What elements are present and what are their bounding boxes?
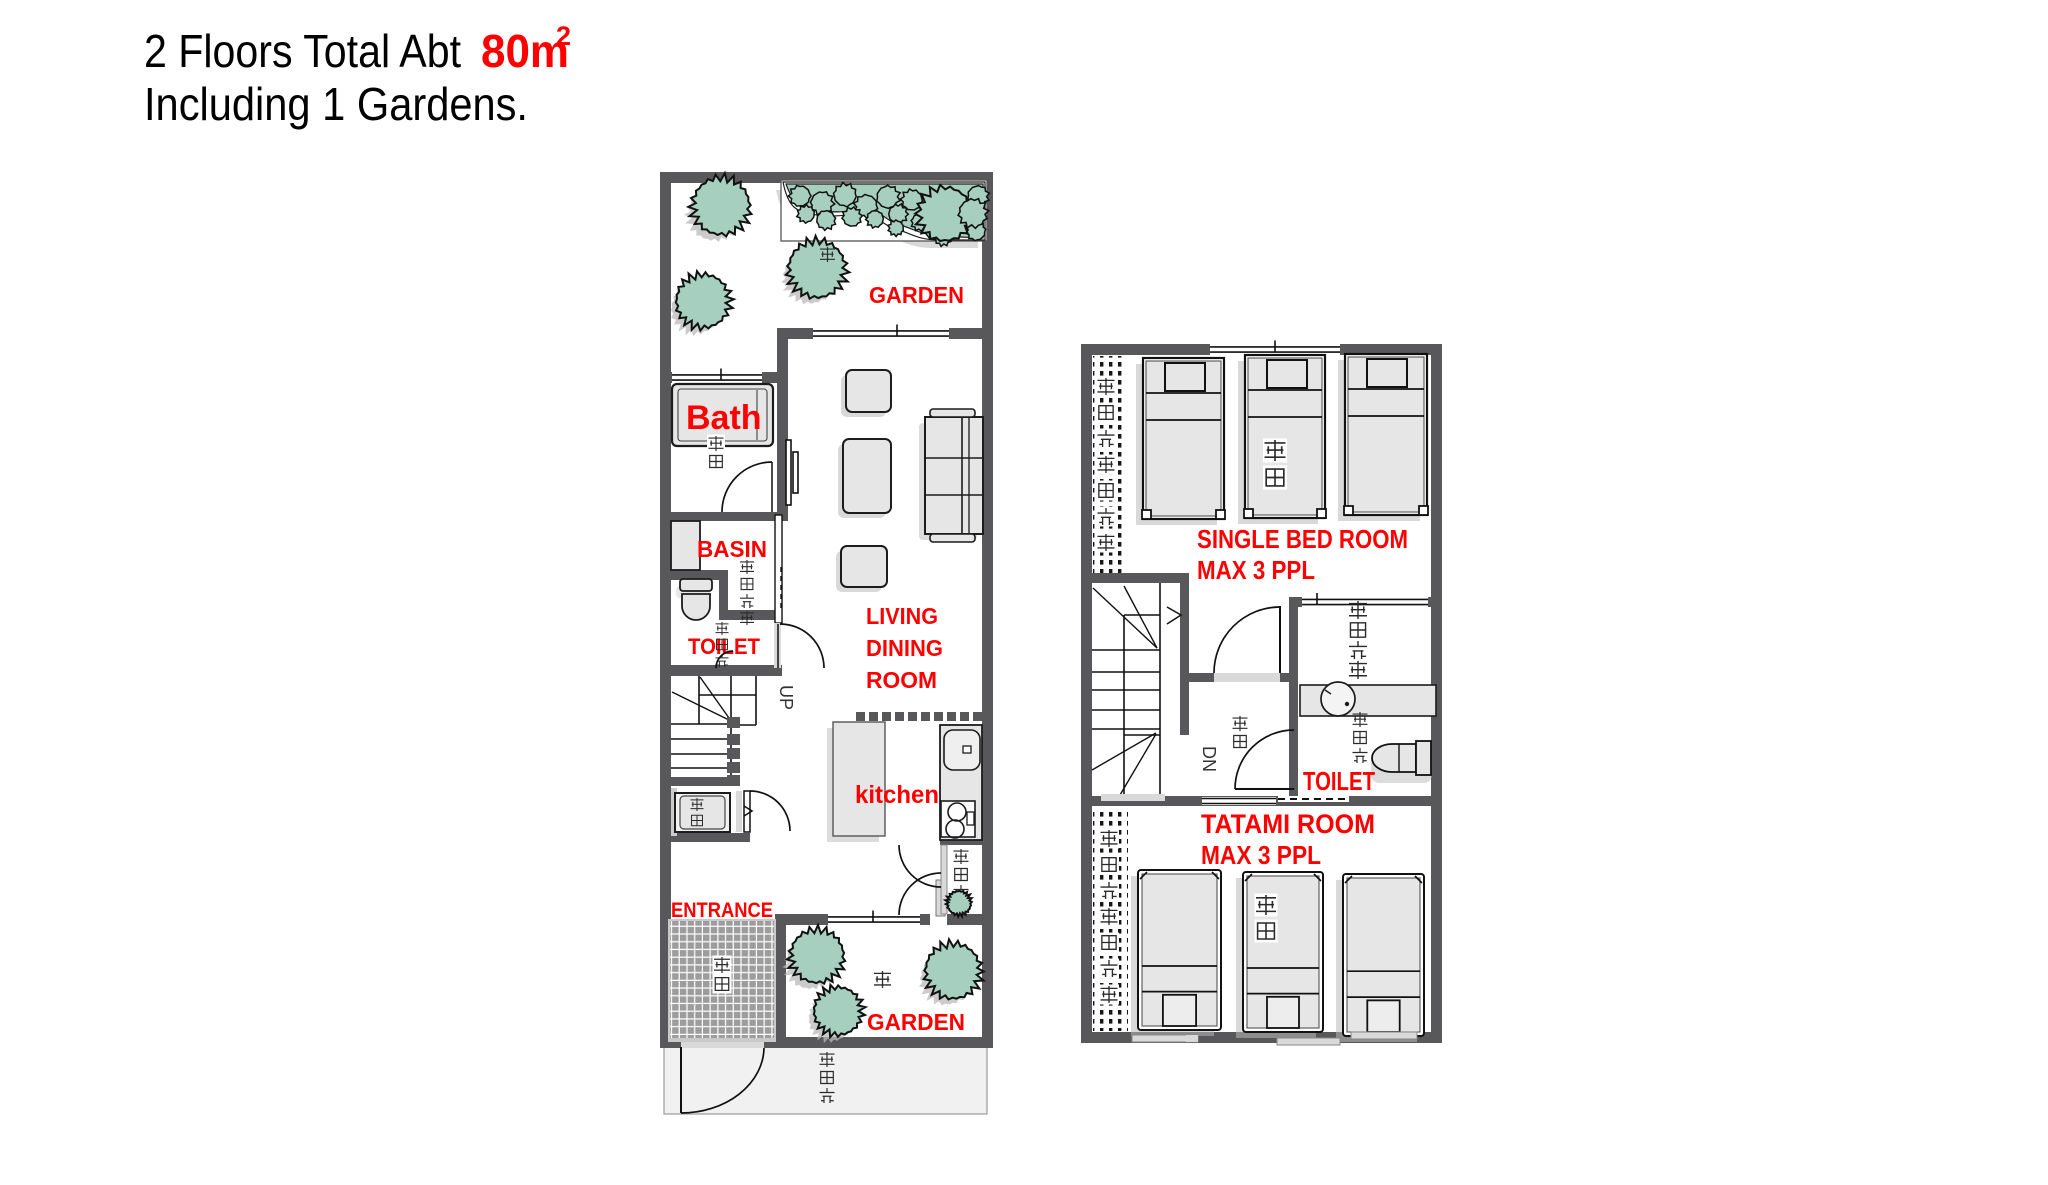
svg-text:TOILET: TOILET xyxy=(1303,766,1375,796)
svg-text:TATAMI ROOM: TATAMI ROOM xyxy=(1201,809,1375,839)
svg-text:LIVING: LIVING xyxy=(866,603,938,629)
svg-text:UP: UP xyxy=(776,685,796,710)
svg-text:kitchen: kitchen xyxy=(855,781,939,809)
svg-text:MAX 3 PPL: MAX 3 PPL xyxy=(1197,555,1315,585)
svg-text:2: 2 xyxy=(556,21,571,51)
svg-text:BASIN: BASIN xyxy=(697,536,767,562)
svg-text:MAX 3 PPL: MAX 3 PPL xyxy=(1201,840,1321,870)
svg-text:ENTRANCE: ENTRANCE xyxy=(671,899,773,922)
svg-text:Bath: Bath xyxy=(686,399,762,437)
svg-text:TOILET: TOILET xyxy=(688,634,761,659)
svg-text:Including 1 Gardens.: Including 1 Gardens. xyxy=(144,78,528,130)
svg-text:GARDEN: GARDEN xyxy=(867,1009,965,1035)
svg-text:2 Floors Total Abt: 2 Floors Total Abt xyxy=(144,25,461,77)
svg-text:GARDEN: GARDEN xyxy=(869,282,964,308)
svg-text:SINGLE BED ROOM: SINGLE BED ROOM xyxy=(1197,524,1408,554)
svg-text:ROOM: ROOM xyxy=(866,667,937,693)
svg-text:DN: DN xyxy=(1199,746,1219,772)
svg-text:DINING: DINING xyxy=(866,635,943,661)
